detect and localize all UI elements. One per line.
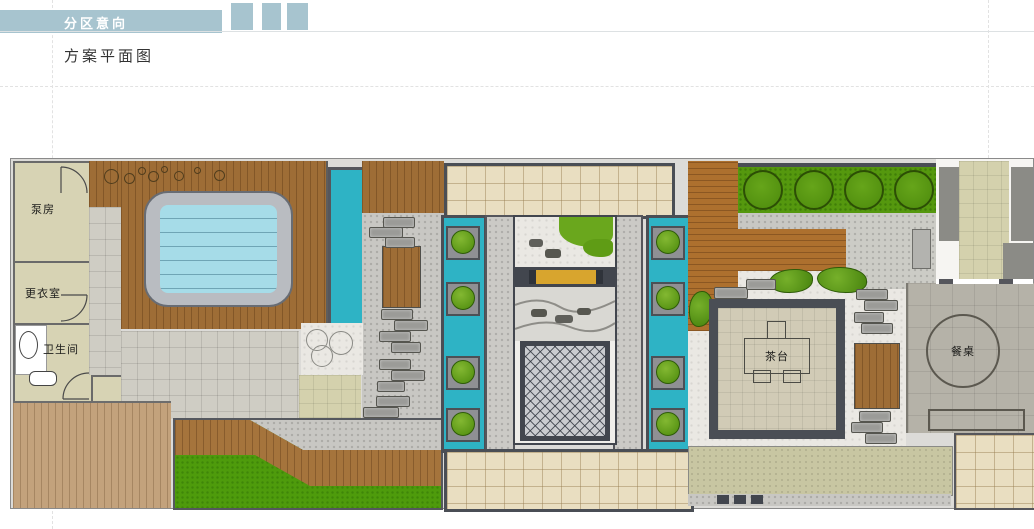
deck-pebble [194, 167, 201, 174]
tea-stool-left [753, 370, 771, 383]
stepping-stone [391, 342, 421, 353]
stepping-stone [864, 300, 898, 311]
header-decor-square-3 [287, 3, 308, 30]
stepping-stone [376, 396, 410, 407]
spa-deck-arm [89, 161, 121, 207]
tea-table: 茶台 [744, 338, 810, 374]
toilet-label: 卫生间 [43, 341, 79, 357]
entry-wall-left [939, 167, 959, 241]
shrub-planter [651, 356, 685, 390]
planter-channel-right [646, 215, 692, 453]
zen-garden [513, 215, 617, 445]
shrub-planter [446, 282, 480, 316]
deck-pebble [148, 171, 159, 182]
lower-deck [13, 401, 171, 508]
stepping-stone [714, 287, 748, 299]
stepping-stone [379, 359, 411, 370]
slide-canvas: 分区意向 方案平面图 泵房 更衣室 卫生间 [0, 0, 1034, 529]
shrub-planter [446, 226, 480, 260]
bed-marker [751, 495, 763, 504]
zen-bench [529, 270, 603, 284]
changing-room-label: 更衣室 [25, 285, 61, 301]
shrub-planter [651, 226, 685, 260]
stepping-stone [394, 320, 428, 331]
shrub-planter [651, 408, 685, 442]
hot-tub-water [160, 205, 277, 293]
path-bench-platform [382, 246, 421, 308]
zen-wave-lines [515, 287, 615, 341]
pebble-patch [301, 323, 363, 375]
stepping-stone [854, 312, 884, 323]
stone-column-left [485, 215, 515, 451]
lattice-court [520, 341, 610, 441]
bed-marker [734, 495, 746, 504]
hedge-foot-path [738, 213, 846, 229]
stepping-stone [865, 433, 897, 444]
stepping-stone [381, 309, 413, 320]
tea-table-label: 茶台 [765, 348, 789, 364]
planting-bed [688, 446, 953, 496]
paving-planter-box [912, 229, 931, 269]
entry-corridor [959, 161, 1009, 279]
zen-bench-band [515, 267, 615, 287]
side-paving-strip [89, 207, 121, 375]
pump-room-label: 泵房 [31, 201, 55, 217]
zen-rock [545, 249, 561, 258]
zen-rock [531, 309, 547, 317]
page-title: 方案平面图 [64, 45, 154, 66]
dining-bench [928, 409, 1025, 431]
header-decor-square-2 [262, 3, 281, 30]
planter-channel-left [441, 215, 487, 453]
stepping-stone [391, 370, 425, 381]
tea-deck-horizontal [738, 229, 846, 271]
tree [844, 170, 884, 210]
side-bench-platform [854, 343, 900, 409]
zen-rock [529, 239, 543, 247]
guide-line-vertical-right [988, 0, 989, 158]
paved-band-bottom [444, 449, 694, 512]
tree [894, 170, 934, 210]
door-mark [939, 279, 953, 284]
stepping-stone [377, 381, 405, 392]
hot-tub [144, 191, 293, 307]
zen-rock [555, 315, 573, 323]
dining-table: 餐桌 [926, 314, 1000, 388]
shrub-planter [651, 282, 685, 316]
stepping-stone [379, 331, 411, 342]
stepping-stone [851, 422, 883, 433]
stepping-stone [861, 323, 893, 334]
entry-wall-right [1011, 167, 1033, 241]
patch-stone-circle [329, 331, 353, 355]
zen-raked-gravel [515, 287, 615, 341]
header-divider-line [0, 31, 1034, 32]
zen-moss [583, 239, 613, 257]
patch-stone-circle [311, 345, 333, 367]
zen-rock [577, 308, 591, 315]
paved-band-top [444, 163, 675, 219]
stepping-stone [363, 407, 399, 418]
tea-stool-top [767, 321, 786, 339]
stepping-stone [385, 237, 415, 248]
site-plan: 泵房 更衣室 卫生间 [10, 158, 1034, 509]
deck-above-path [362, 161, 444, 213]
bed-marker [717, 495, 729, 504]
tree [743, 170, 783, 210]
guide-line-horizontal [0, 86, 1034, 87]
shrub-planter [446, 356, 480, 390]
deck-pebble [161, 166, 168, 173]
lawn [173, 418, 443, 510]
stepping-stone [856, 289, 888, 300]
door-mark [999, 279, 1013, 284]
section-title: 分区意向 [64, 13, 128, 32]
deck-pebble [104, 169, 119, 184]
shrub-planter [446, 408, 480, 442]
tea-stool-right [783, 370, 801, 383]
stepping-stone [746, 279, 776, 290]
tree [794, 170, 834, 210]
deck-pebble [124, 173, 135, 184]
deck-pebble [214, 170, 225, 181]
entry-wall-lower [1003, 243, 1033, 279]
header-decor-square-1 [231, 3, 253, 30]
deck-pebble [138, 167, 146, 175]
stepping-stone [859, 411, 891, 422]
stone-column-right [613, 215, 643, 451]
section-header-bar: 分区意向 [0, 10, 222, 33]
corner-terrace [954, 433, 1034, 510]
deck-pebble [174, 171, 184, 181]
dining-table-label: 餐桌 [951, 343, 975, 359]
